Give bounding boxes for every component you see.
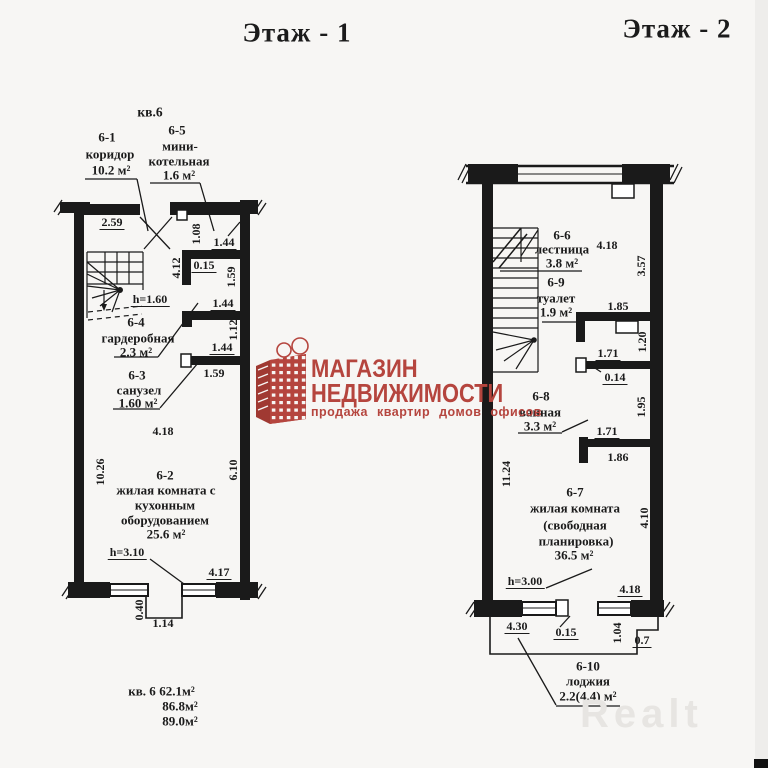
room-6-2-area: 25.6 м²: [147, 528, 186, 541]
f2-dim-1-20: 1.20: [636, 332, 648, 353]
f2-dim-1-71a: 1.71: [596, 347, 621, 361]
f2-dim-4-18a: 4.18: [597, 239, 618, 251]
room-6-9-id: 6-9: [547, 276, 564, 289]
floorplan-page: Этаж - 1 кв.6 6-1 коридор 10.2 м² 6-5 ми…: [0, 0, 768, 768]
room-6-6-name: лестница: [535, 243, 589, 256]
f2-dim-1-85: 1.85: [606, 300, 631, 314]
f1-dim-1-44b: 1.44: [211, 297, 236, 311]
f2-dim-3-57: 3.57: [635, 256, 647, 277]
room-6-7-name1: жилая комната: [530, 502, 620, 515]
f1-dim-1-44a: 1.44: [212, 236, 237, 250]
room-6-9-name: туалет: [537, 292, 576, 305]
room-6-6-id: 6-6: [553, 229, 570, 242]
room-6-7-name2: (свободная: [543, 519, 607, 532]
room-6-6-area: 3.8 м²: [546, 257, 578, 270]
f1-dim-6-10: 6.10: [227, 460, 239, 481]
f2-dim-4-18b: 4.18: [618, 583, 643, 597]
realt-watermark: Realt: [580, 692, 703, 737]
logo-building-icon: [256, 338, 308, 424]
room-6-5-name2: котельная: [149, 155, 210, 168]
room-6-5-id: 6-5: [168, 124, 185, 137]
room-6-1-name: коридор: [86, 148, 135, 161]
room-6-7-name3: планировка): [539, 535, 614, 548]
f2-dim-4-10: 4.10: [638, 508, 650, 529]
f2-dim-4-30: 4.30: [505, 620, 530, 634]
room-6-10-id: 6-10: [576, 660, 600, 673]
room-6-10-name: лоджия: [566, 675, 610, 688]
room-6-8-area: 3.3 м²: [524, 420, 556, 433]
room-6-1-area: 10.2 м²: [92, 164, 131, 177]
f2-dim-0-7: 0.7: [633, 634, 652, 648]
f2-dim-1-71b: 1.71: [595, 425, 620, 439]
f1-dim-1-44c: 1.44: [210, 341, 235, 355]
f2-dim-1-86: 1.86: [608, 451, 629, 463]
room-6-7-area: 36.5 м²: [555, 549, 594, 562]
room-6-2-id: 6-2: [156, 469, 173, 482]
room-6-1-id: 6-1: [98, 131, 115, 144]
floor2-stairs: [493, 228, 538, 372]
room-6-8-id: 6-8: [532, 390, 549, 403]
logo-tagline: продажа квартир домов офисов: [311, 406, 542, 419]
room-6-3-id: 6-3: [128, 369, 145, 382]
floor1-apartment-label: кв.6: [137, 105, 162, 119]
room-6-9-area: 1.9 м²: [540, 306, 572, 319]
f1-dim-1-08: 1.08: [190, 224, 202, 245]
room-6-2-name2: кухонным: [135, 499, 195, 512]
room-6-2-name3: оборудованием: [121, 514, 209, 527]
totals-area-3: 89.0м²: [162, 715, 198, 728]
f1-height-room: h=3.10: [108, 546, 147, 560]
room-6-4-area: 2.3 м²: [120, 346, 152, 359]
f2-dim-11-24: 11.24: [500, 461, 512, 487]
floor1-title: Этаж - 1: [243, 20, 352, 47]
f2-height-room: h=3.00: [506, 575, 545, 589]
f2-dim-1-95: 1.95: [635, 397, 647, 418]
room-6-7-id: 6-7: [566, 486, 583, 499]
room-6-4-id: 6-4: [127, 316, 144, 329]
logo-line2: НЕДВИЖИМОСТИ: [311, 380, 503, 406]
f1-dim-0-15: 0.15: [192, 259, 217, 273]
f1-dim-4-17: 4.17: [207, 566, 232, 580]
room-6-2-name1: жилая комната с: [116, 484, 215, 497]
f1-dim-4-12: 4.12: [170, 258, 182, 279]
f1-height-stair: h=1.60: [131, 293, 170, 307]
floor1-stairs: [87, 252, 143, 320]
f2-dim-0-14: 0.14: [603, 371, 628, 385]
totals-area-1: 62.1м²: [159, 685, 195, 698]
f1-dim-1-12: 1.12: [227, 320, 239, 341]
f1-dim-0-40: 0.40: [133, 600, 145, 621]
f2-dim-0-15: 0.15: [554, 626, 579, 640]
f1-dim-1-59a: 1.59: [225, 267, 237, 288]
totals-apartment: кв. 6: [128, 685, 156, 698]
room-6-5-area: 1.6 м²: [163, 169, 195, 182]
f1-dim-1-59b: 1.59: [204, 367, 225, 379]
f1-dim-2-59: 2.59: [100, 216, 125, 230]
floor2-leaders: [500, 271, 620, 706]
floor2-title: Этаж - 2: [623, 16, 732, 43]
f1-dim-10-26: 10.26: [94, 459, 106, 486]
room-6-5-name1: мини-: [162, 140, 198, 153]
room-6-4-name: гардеробная: [101, 332, 174, 345]
floor1-porch: [146, 597, 182, 618]
room-6-3-area: 1.60 м²: [119, 397, 158, 410]
f1-dim-4-18: 4.18: [153, 425, 174, 437]
f1-dim-1-14: 1.14: [153, 617, 174, 629]
totals-area-2: 86.8м²: [162, 700, 198, 713]
f2-dim-1-04: 1.04: [611, 623, 623, 644]
